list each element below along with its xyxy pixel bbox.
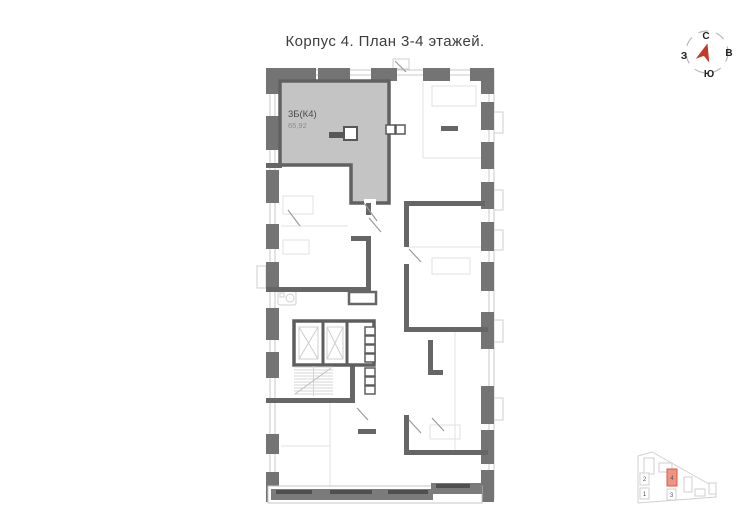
floorplan-page: Корпус 4. План 3-4 этажей. — [0, 0, 750, 530]
apartment-type-label: 3Б(К4) — [288, 109, 317, 120]
elevator-core — [294, 321, 375, 394]
compass-west-label: З — [681, 51, 687, 62]
shaft-box — [386, 125, 395, 134]
compass-arrow-icon — [696, 41, 714, 62]
compass: С В Ю З — [681, 31, 733, 80]
wall-segment — [266, 163, 282, 168]
floorplan-canvas: Корпус 4. План 3-4 этажей. — [0, 0, 750, 530]
minimap-building — [695, 489, 705, 496]
apartment-area: 65,92 — [288, 121, 307, 130]
vent-shafts — [365, 327, 375, 394]
site-minimap: 2 1 4 3 — [638, 452, 716, 503]
bottom-balcony-band — [268, 483, 482, 503]
minimap-building — [684, 477, 692, 492]
wall-niche — [349, 292, 376, 304]
page-title: Корпус 4. План 3-4 этажей. — [285, 33, 484, 50]
staircase — [294, 366, 333, 396]
minimap-building — [709, 483, 716, 494]
minimap-building — [644, 458, 654, 474]
compass-east-label: В — [725, 48, 732, 59]
shaft-box — [396, 125, 405, 134]
compass-north-label: С — [702, 31, 709, 42]
washer-icon — [278, 291, 296, 305]
compass-south-label: Ю — [704, 69, 714, 80]
column-box — [344, 127, 357, 140]
highlighted-apartment[interactable]: 3Б(К4) 65,92 — [266, 81, 405, 207]
apartment-3b-k4-shape[interactable] — [280, 81, 389, 203]
